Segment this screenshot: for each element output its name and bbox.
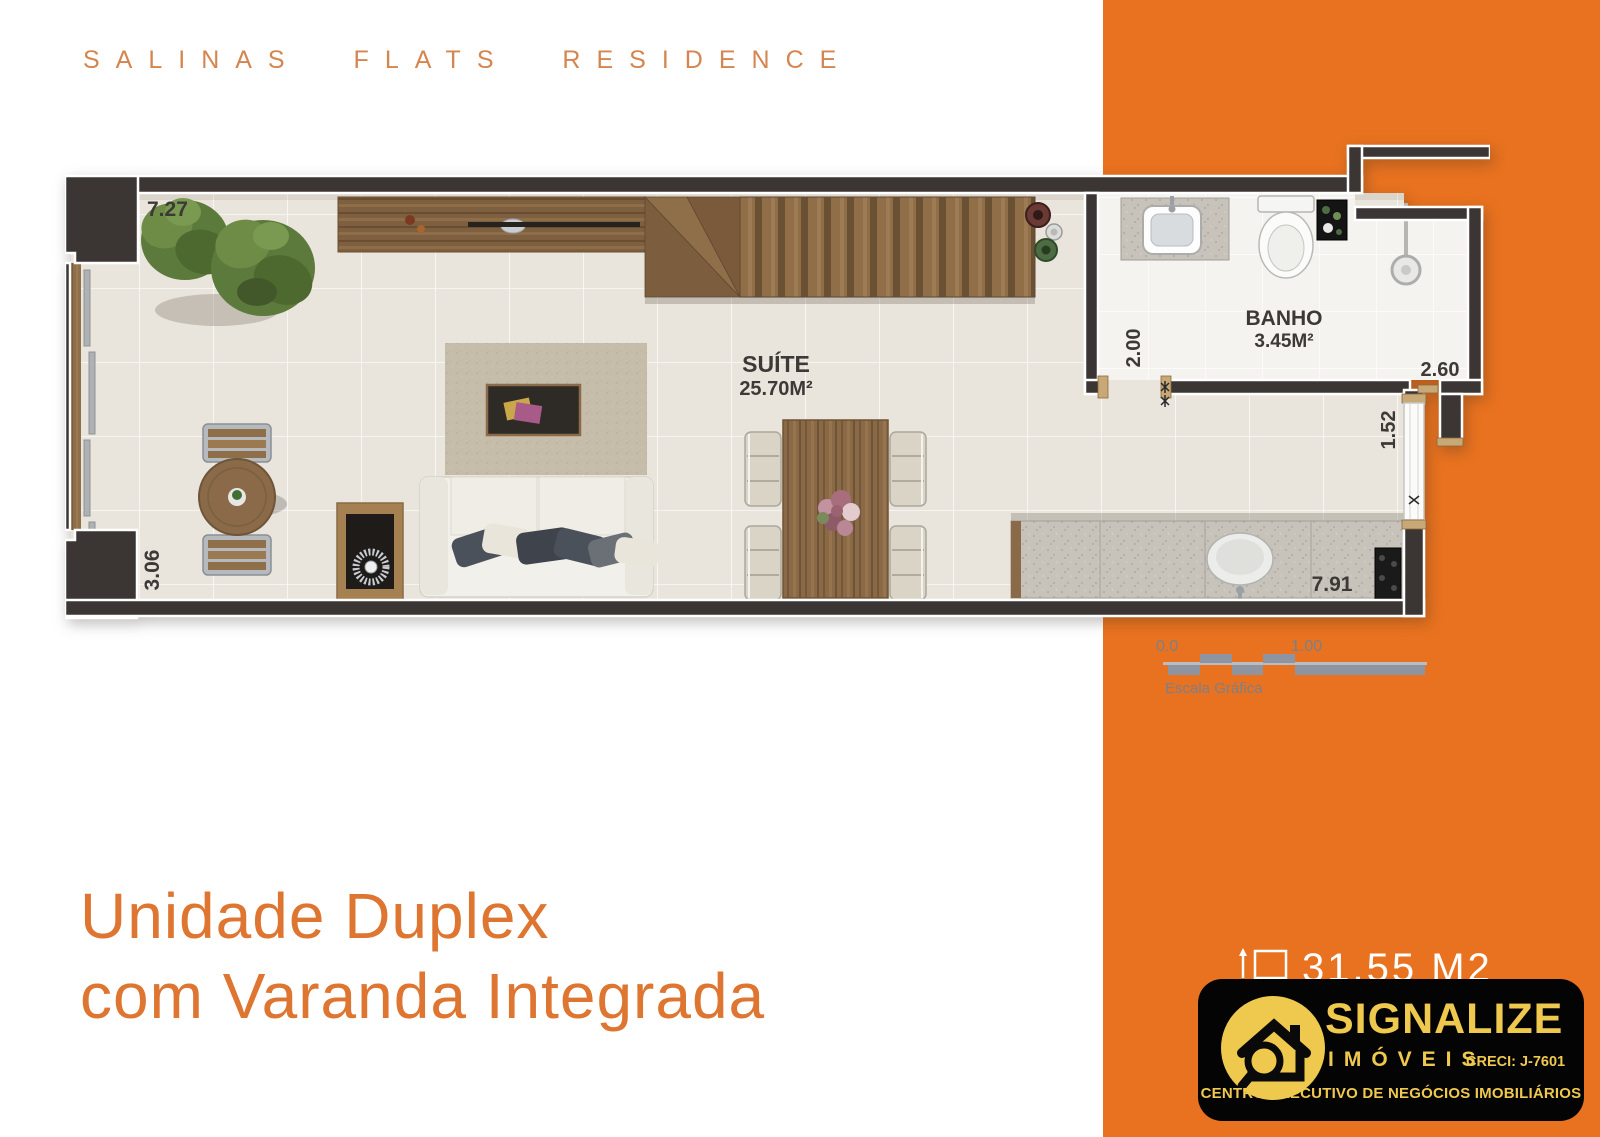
coffee-table [487,385,580,435]
scale-zero-label: 0.0 [1156,638,1178,656]
room-label-suite: SUÍTE [742,350,810,377]
tv-shelf [338,197,646,252]
logo-tagline: CENTRO EXECUTIVO DE NEGÓCIOS IMOBILIÁRIO… [1198,1085,1584,1102]
measurement-bath-right: 2.60 [1421,359,1460,381]
area-icon [1238,946,1290,982]
toilet [1258,196,1314,278]
cooktop [1375,548,1401,600]
faucet-icon [1169,206,1176,213]
sofa [420,477,661,597]
scale-segment [1295,665,1425,675]
staircase [645,197,1035,304]
logo-creci: CRECI: J-7601 [1466,1054,1565,1070]
bath-shelf-plant [1317,200,1347,240]
tv-icon [468,222,640,227]
scale-segment [1263,654,1295,663]
measurement-top: 7.27 [147,198,188,221]
scale-segment [1232,665,1263,675]
scale-segment [1168,665,1200,675]
room-area-suite: 25.70M² [739,378,813,400]
decor-candle-icon [405,215,415,225]
measurement-kitchen: 7.91 [1312,573,1353,596]
balcony-chair-bottom [203,535,271,575]
scale-one-label: 1.00 [1291,638,1322,656]
measurement-bath-left: 2.00 [1123,329,1145,368]
measurement-left: 3.06 [141,550,164,591]
heading-line2: com Varanda Integrada [80,956,765,1036]
measurement-right: 1.52 [1378,411,1400,450]
right-window [1402,394,1426,529]
page-canvas: SALINAS FLATS RESIDENCE [0,0,1600,1137]
scale-segment [1200,654,1232,663]
scale-caption: Escala Gráfica [1165,680,1263,697]
floor-plan: 7.27 3.06 SUÍTE 25.70M² BANHO 3.45M² 2.0… [65,140,1490,625]
balcony-chair-top [203,424,271,462]
logo-brand: SIGNALIZE [1325,995,1563,1044]
logo-subtitle: IMÓVEIS [1328,1048,1486,1072]
page-heading: Unidade Duplex com Varanda Integrada [80,876,765,1036]
room-area-bath: 3.45M² [1254,331,1313,352]
scale-bar: 0.0 1.00 Escala Gráfica [1140,638,1440,702]
room-label-bath: BANHO [1246,307,1323,330]
bathroom-vanity [1121,196,1229,260]
signalize-logo: SIGNALIZE IMÓVEIS CRECI: J-7601 CENTRO E… [1198,979,1584,1121]
brand-title: SALINAS FLATS RESIDENCE [83,46,852,75]
fireplace [337,503,403,600]
heading-line1: Unidade Duplex [80,876,765,956]
